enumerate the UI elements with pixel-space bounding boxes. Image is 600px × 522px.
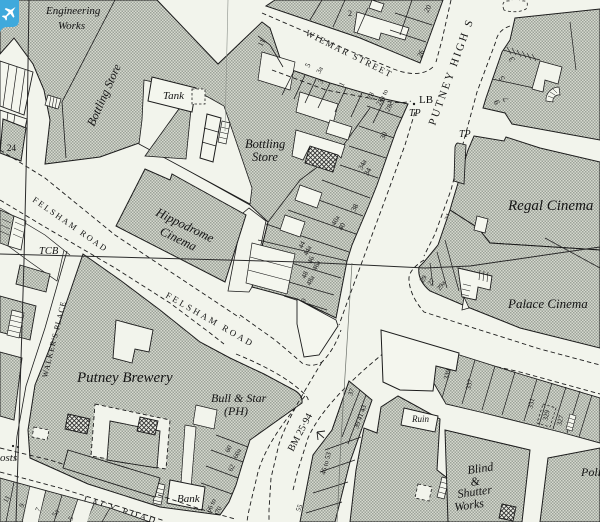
svg-text:Tank: Tank: [163, 90, 185, 102]
svg-text:Palace Cinema: Palace Cinema: [507, 296, 588, 311]
svg-text:2: 2: [348, 9, 352, 18]
svg-text:Engineering: Engineering: [45, 5, 101, 17]
svg-text:Bottling: Bottling: [245, 137, 285, 151]
svg-text:Bull & Star: Bull & Star: [211, 391, 267, 405]
svg-text:LB: LB: [419, 94, 433, 106]
svg-text:Store: Store: [252, 150, 278, 164]
svg-text:Putney Brewery: Putney Brewery: [76, 370, 173, 386]
svg-text:Ruin: Ruin: [411, 414, 429, 424]
svg-text:Works: Works: [58, 20, 85, 32]
svg-text:osts: osts: [0, 452, 17, 464]
svg-text:24: 24: [7, 143, 17, 153]
svg-text:Poli: Poli: [580, 465, 600, 479]
svg-text:Regal Cinema: Regal Cinema: [507, 198, 593, 214]
svg-text:Bank: Bank: [177, 493, 201, 505]
svg-text:(PH): (PH): [224, 404, 248, 418]
